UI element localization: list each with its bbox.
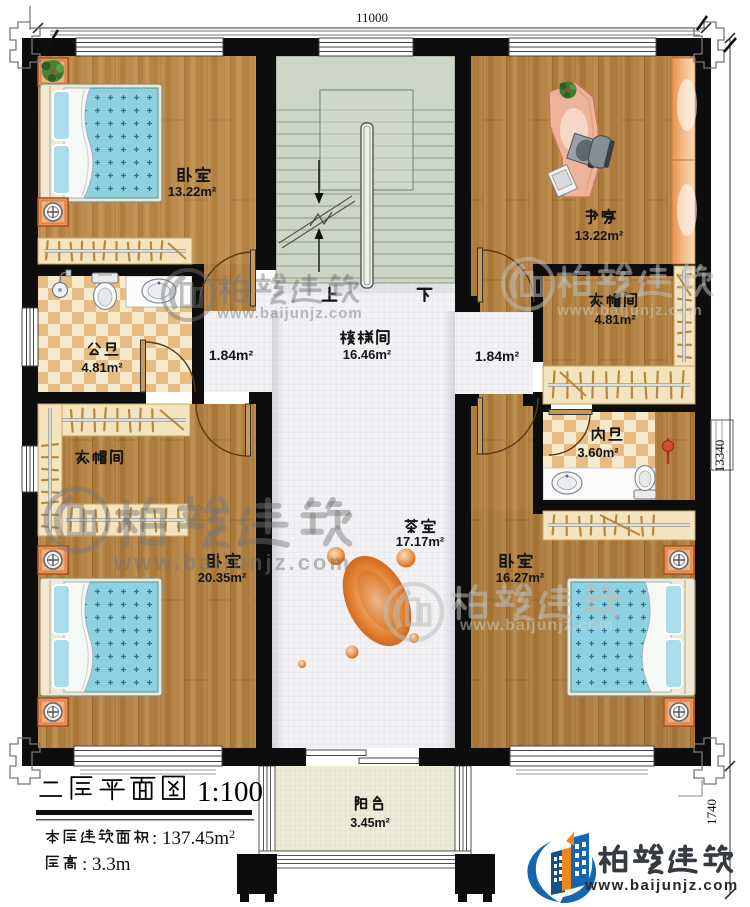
- svg-text:13340: 13340: [712, 440, 727, 473]
- svg-text:4.81m²: 4.81m²: [81, 360, 123, 375]
- svg-text:3.60m²: 3.60m²: [577, 445, 619, 460]
- svg-text:16.27m²: 16.27m²: [496, 570, 545, 585]
- svg-text:13.22m²: 13.22m²: [575, 228, 624, 243]
- svg-text:www.baijunjz.com: www.baijunjz.com: [556, 302, 702, 319]
- svg-text:: 137.45m2: : 137.45m2: [152, 827, 235, 849]
- svg-text:www.baijunjz.com: www.baijunjz.com: [113, 550, 352, 575]
- svg-text:www.baijunjz.com: www.baijunjz.com: [584, 877, 738, 894]
- svg-text:: 3.3m: : 3.3m: [82, 854, 131, 875]
- svg-text:16.46m²: 16.46m²: [343, 347, 392, 362]
- svg-text:11000: 11000: [356, 10, 388, 25]
- svg-text:3.45m²: 3.45m²: [350, 816, 390, 830]
- svg-text:1.84m²: 1.84m²: [475, 348, 520, 364]
- svg-text:1.84m²: 1.84m²: [209, 347, 254, 363]
- svg-text:www.baijunjz.com: www.baijunjz.com: [216, 305, 362, 322]
- svg-text:13.22m²: 13.22m²: [168, 184, 217, 199]
- svg-text:17.17m²: 17.17m²: [396, 534, 445, 549]
- svg-text:1740: 1740: [704, 799, 719, 825]
- svg-text:www.baijunjz.com: www.baijunjz.com: [459, 617, 614, 634]
- svg-text:1:100: 1:100: [197, 776, 263, 808]
